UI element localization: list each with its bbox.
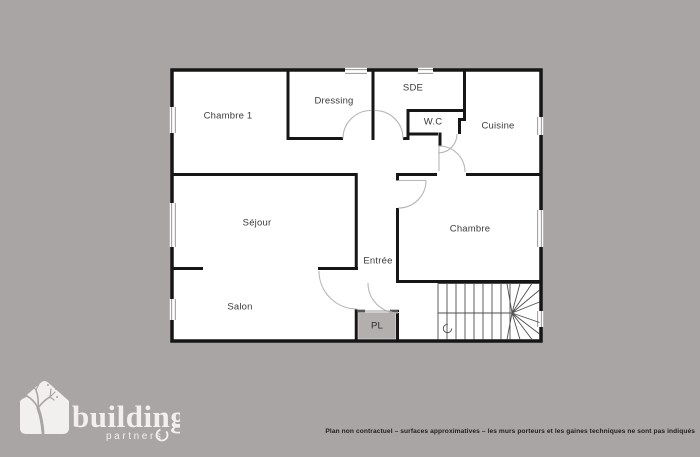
room-label-dressing: Dressing xyxy=(314,96,353,107)
room-label-cuisine: Cuisine xyxy=(481,121,514,132)
plan-disclaimer: Plan non contractuel – surfaces approxim… xyxy=(325,428,695,435)
room-label-sejour: Séjour xyxy=(243,218,272,229)
room-label-pl: PL xyxy=(371,321,383,332)
floorplan-page: Chambre 1 Dressing SDE W.C Cuisine Séjou… xyxy=(0,0,700,457)
agency-logo: building partners xyxy=(10,376,180,451)
logo-brand-text: building xyxy=(72,399,180,434)
room-label-salon: Salon xyxy=(227,302,252,313)
house-icon xyxy=(20,381,69,435)
room-label-chambre: Chambre xyxy=(450,224,490,235)
room-label-entree: Entrée xyxy=(363,256,392,267)
room-label-wc: W.C xyxy=(424,117,443,128)
logo-sub-text: partners xyxy=(106,431,164,442)
room-label-sde: SDE xyxy=(403,83,423,94)
room-label-chambre1: Chambre 1 xyxy=(204,111,253,122)
